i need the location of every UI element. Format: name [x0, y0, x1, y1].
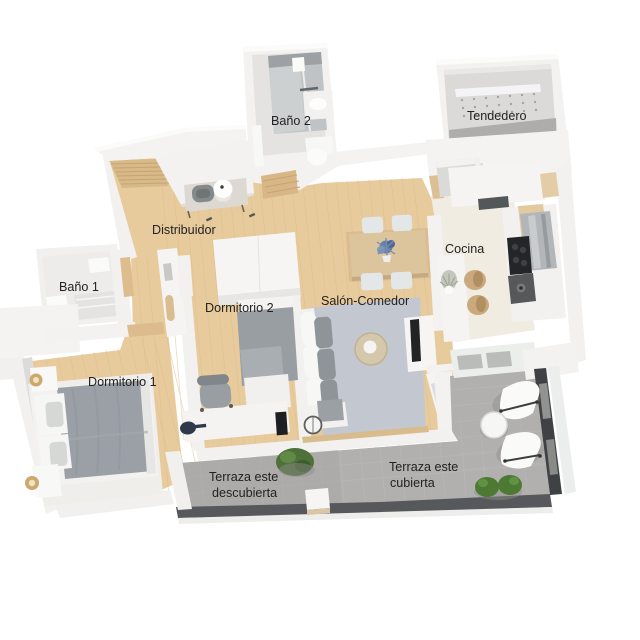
svg-text:descubierta: descubierta	[212, 486, 277, 500]
svg-text:Terraza este: Terraza este	[389, 460, 458, 474]
svg-text:Salón-Comedor: Salón-Comedor	[321, 294, 409, 308]
svg-text:Terraza este: Terraza este	[209, 470, 278, 484]
svg-text:Baño 2: Baño 2	[271, 114, 311, 128]
svg-text:Cocina: Cocina	[445, 242, 484, 256]
svg-text:Tendedero: Tendedero	[467, 109, 527, 123]
svg-text:cubierta: cubierta	[390, 476, 435, 490]
svg-text:Distribuidor: Distribuidor	[152, 223, 216, 237]
svg-text:Dormitorio 2: Dormitorio 2	[205, 301, 274, 315]
svg-text:Dormitorio 1: Dormitorio 1	[88, 375, 157, 389]
svg-text:Baño 1: Baño 1	[59, 280, 99, 294]
